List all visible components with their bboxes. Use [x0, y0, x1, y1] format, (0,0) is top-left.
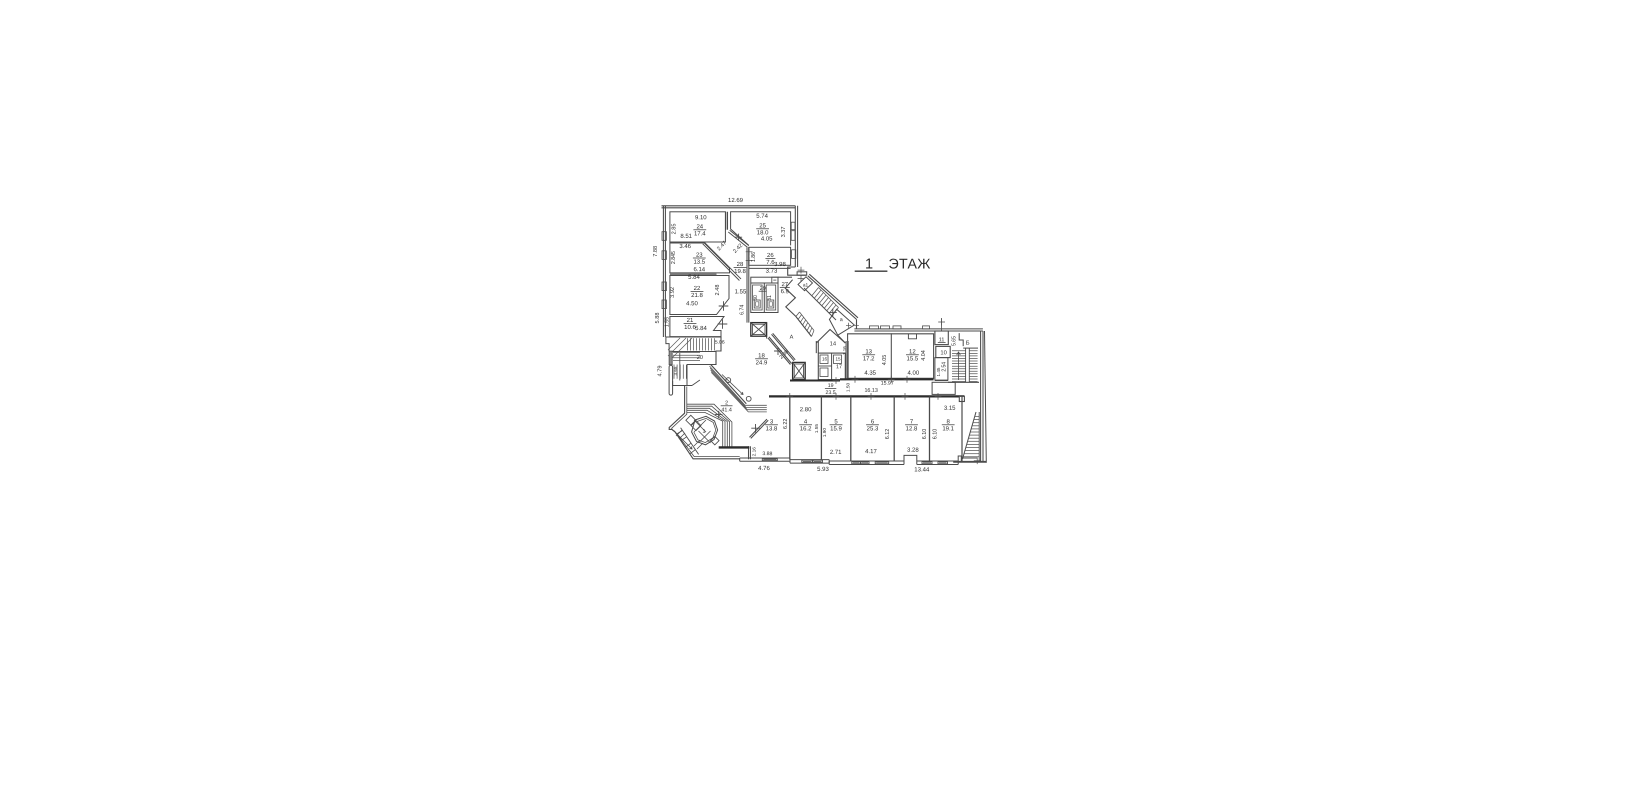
- svg-text:15.9: 15.9: [830, 426, 842, 432]
- svg-text:21.8: 21.8: [691, 293, 703, 299]
- svg-text:2.80: 2.80: [800, 407, 812, 413]
- svg-text:16: 16: [822, 356, 828, 361]
- svg-text:3.68: 3.68: [673, 366, 678, 375]
- svg-text:3.73: 3.73: [766, 269, 778, 275]
- svg-text:10: 10: [940, 350, 946, 356]
- svg-text:15.97: 15.97: [881, 381, 894, 387]
- svg-text:а: а: [840, 317, 843, 323]
- svg-text:17.2: 17.2: [863, 356, 875, 362]
- svg-text:3.46: 3.46: [679, 244, 691, 250]
- svg-text:1.55: 1.55: [735, 289, 747, 295]
- svg-text:2.845: 2.845: [671, 251, 677, 264]
- svg-text:23.5: 23.5: [826, 390, 836, 396]
- svg-text:6.74: 6.74: [739, 305, 745, 315]
- svg-text:6.12: 6.12: [885, 429, 891, 440]
- svg-text:16.2: 16.2: [800, 426, 812, 432]
- svg-text:25.3: 25.3: [867, 426, 879, 432]
- svg-text:4.04: 4.04: [921, 350, 927, 361]
- svg-text:1: 1: [865, 256, 873, 272]
- svg-text:4.00: 4.00: [908, 371, 920, 377]
- svg-text:14: 14: [830, 341, 837, 347]
- svg-text:13.5: 13.5: [693, 260, 705, 266]
- svg-text:13.8: 13.8: [766, 426, 778, 432]
- svg-text:16.13: 16.13: [864, 388, 878, 394]
- svg-text:1.90: 1.90: [822, 428, 828, 438]
- svg-text:1.50: 1.50: [846, 383, 852, 393]
- svg-text:15: 15: [835, 356, 841, 361]
- svg-text:4.50: 4.50: [686, 301, 698, 307]
- svg-text:3.37: 3.37: [781, 226, 787, 237]
- svg-text:15.5: 15.5: [907, 356, 919, 362]
- svg-text:5.06: 5.06: [715, 340, 725, 346]
- svg-text:17: 17: [836, 364, 842, 370]
- svg-text:3.98: 3.98: [774, 262, 786, 268]
- svg-text:4.35: 4.35: [864, 371, 876, 377]
- svg-text:3.28: 3.28: [907, 448, 919, 454]
- svg-text:5.84: 5.84: [695, 326, 707, 332]
- svg-text:6.10: 6.10: [922, 429, 928, 440]
- svg-text:1.55: 1.55: [664, 317, 670, 327]
- svg-text:5.93: 5.93: [817, 467, 829, 473]
- svg-text:18.0: 18.0: [757, 230, 769, 236]
- svg-text:6.10: 6.10: [932, 429, 938, 440]
- svg-text:А: А: [790, 335, 794, 341]
- svg-text:а1: а1: [803, 282, 809, 288]
- svg-text:4.76: 4.76: [758, 466, 770, 472]
- svg-text:2.48: 2.48: [715, 285, 721, 296]
- svg-text:5.84: 5.84: [688, 275, 700, 281]
- svg-text:Б: Б: [966, 341, 970, 347]
- svg-text:1.45: 1.45: [936, 367, 941, 376]
- svg-text:6.14: 6.14: [693, 267, 705, 273]
- svg-text:ЭТАЖ: ЭТАЖ: [888, 257, 930, 273]
- svg-text:5.88: 5.88: [655, 313, 661, 324]
- svg-text:41.4: 41.4: [721, 407, 732, 413]
- svg-text:2.54: 2.54: [942, 362, 948, 372]
- svg-text:6.9: 6.9: [781, 289, 790, 295]
- svg-text:5.65: 5.65: [951, 336, 957, 346]
- svg-text:4.05: 4.05: [882, 355, 888, 366]
- svg-text:3.15: 3.15: [944, 406, 956, 412]
- svg-text:1.55: 1.55: [814, 424, 820, 434]
- svg-text:4.79: 4.79: [658, 366, 664, 377]
- svg-text:3.92: 3.92: [670, 287, 676, 298]
- svg-text:20: 20: [697, 355, 703, 361]
- svg-text:9.10: 9.10: [695, 215, 707, 221]
- svg-text:17.4: 17.4: [694, 231, 706, 237]
- svg-text:12.69: 12.69: [728, 198, 744, 204]
- svg-text:2.16: 2.16: [752, 447, 758, 457]
- svg-text:13.44: 13.44: [914, 467, 930, 473]
- svg-text:19.8: 19.8: [734, 269, 746, 275]
- svg-text:4.17: 4.17: [865, 449, 877, 455]
- svg-text:24.9: 24.9: [756, 360, 768, 366]
- svg-text:2.85: 2.85: [672, 223, 678, 234]
- svg-text:12.8: 12.8: [906, 426, 918, 432]
- svg-text:7.88: 7.88: [653, 246, 659, 257]
- svg-text:2.71: 2.71: [830, 450, 842, 456]
- svg-text:6.22: 6.22: [783, 419, 789, 430]
- svg-text:19.1: 19.1: [942, 426, 954, 432]
- svg-text:5.74: 5.74: [756, 214, 768, 220]
- svg-text:8.51: 8.51: [680, 234, 692, 240]
- svg-text:4.05: 4.05: [761, 236, 773, 242]
- svg-text:3.88: 3.88: [762, 451, 772, 457]
